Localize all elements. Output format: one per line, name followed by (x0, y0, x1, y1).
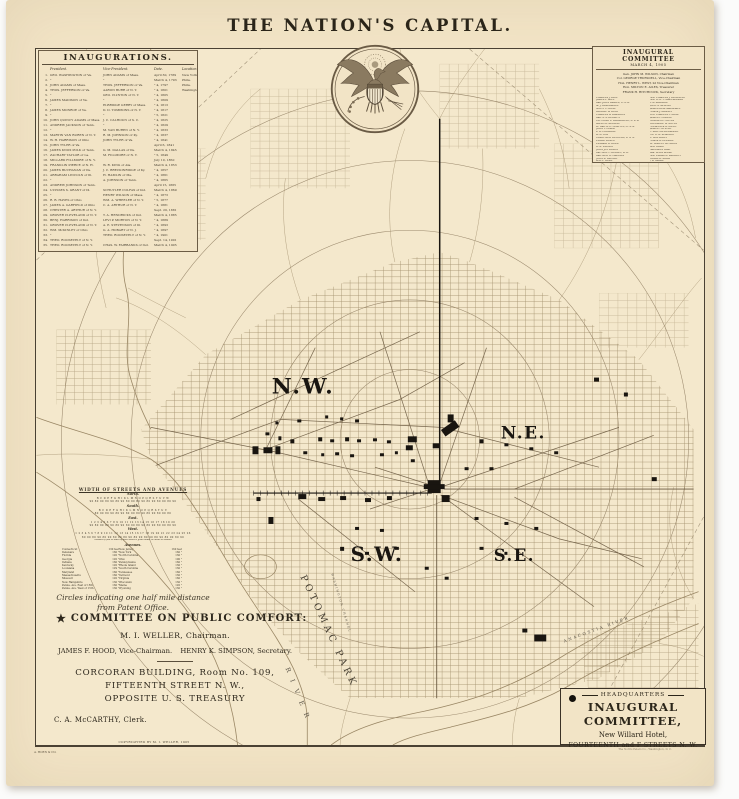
committee-members: CHARLES J. BELLJAMES F. BELLGen. JOHN BI… (596, 97, 701, 164)
chairman-line: M. I. WELLER, Chairman. (56, 631, 294, 640)
avenue-row: Penna. Ave. West of 15th 130 " Wyoming 1… (62, 587, 204, 590)
inaugurations-header: President. Vice-President. Date. Locatio… (42, 67, 194, 71)
col-president: President. (50, 67, 102, 71)
headquarters-dot-icon (569, 695, 576, 702)
circles-caption: Circles indicating one half mile distanc… (54, 593, 212, 613)
avenues-list: Connecticut 130 feet New Jersey 160 feet… (62, 548, 204, 591)
inaugurations-title: INAUGURATIONS. (42, 53, 194, 65)
streets-width-note: WIDTH OF STREETS AND AVENUES North.B C D… (62, 487, 204, 591)
committee-title: INAUGURAL COMMITTEE (596, 49, 701, 63)
svg-text:N.E.: N.E. (501, 422, 546, 442)
inaugurations-panel: INAUGURATIONS. President. Vice-President… (38, 50, 198, 252)
streets-note-lines: North.B C D E F G H I K L M N O P Q R S … (62, 492, 204, 543)
printer-credit: The Norris Peters Co., Washington, D. C. (584, 748, 706, 751)
members-column-1: CHARLES J. BELLJAMES F. BELLGen. JOHN BI… (596, 97, 648, 164)
screenshot-stage: THE NATION'S CAPITAL. N.W.N.E.S.W.S.E.PO… (0, 0, 739, 799)
headquarters-box: HEADQUARTERS INAUGURAL COMMITTEE, New Wi… (560, 688, 706, 745)
great-seal-icon (328, 42, 422, 136)
lithographer-credit: A. HOEN & CO. (34, 750, 56, 754)
headquarters-title: INAUGURAL COMMITTEE, (561, 700, 705, 728)
inaugural-committee-panel: INAUGURAL COMMITTEE MARCH 4, 1905 Gen. J… (592, 46, 705, 163)
building-line-1: CORCORAN BUILDING, Room No. 109, (56, 667, 294, 680)
dash-rule (582, 695, 598, 696)
headquarters-hotel: New Willard Hotel, (561, 731, 705, 739)
table-row: 35. THEO. ROOSEVELT of N. Y. CHAS. W. FA… (42, 243, 194, 248)
headquarters-label: HEADQUARTERS (601, 692, 665, 698)
building-line-2: FIFTEENTH STREET N. W., (56, 680, 294, 693)
svg-text:S.W.: S.W. (351, 542, 404, 566)
members-column-2: Hon. CHARLES J. BUCKNELLHon. H. B. F. MA… (650, 97, 702, 164)
committee-date: MARCH 4, 1905 (596, 63, 701, 70)
col-vice-president: Vice-President. (103, 67, 153, 71)
public-comfort-block: ★COMMITTEE ON PUBLIC COMFORT: M. I. WELL… (56, 612, 294, 706)
star-icon: ★ (56, 612, 71, 625)
building-line-3: OPPOSITE U. S. TREASURY (56, 693, 294, 706)
officer: FRANK H. HITCHCOCK, Secretary (596, 90, 701, 95)
headquarters-label-row: HEADQUARTERS (561, 692, 705, 698)
public-comfort-title: ★COMMITTEE ON PUBLIC COMFORT: (56, 612, 294, 625)
secretary-line: HENRY K. SIMPSON, Secretary. (180, 647, 292, 655)
committee-officers: Gen. JOHN M. WILSON, ChairmanCol. GEORGE… (596, 72, 701, 95)
svg-text:S.E.: S.E. (494, 546, 535, 565)
page-title: THE NATION'S CAPITAL. (35, 16, 705, 35)
member: J. D. SMALL (650, 160, 702, 163)
clerk-line: C. A. McCARTHY, Clerk. (54, 716, 147, 724)
divider (157, 661, 193, 662)
dash-rule (668, 695, 684, 696)
svg-text:N.W.: N.W. (272, 374, 335, 400)
svg-text:ANACOSTIA RIVER: ANACOSTIA RIVER (562, 615, 630, 644)
officers-line: JAMES F. HOOD, Vice-Chairman. HENRY K. S… (56, 647, 294, 655)
member: WM. F. GUDE (596, 160, 648, 163)
col-location: Location. (182, 67, 198, 71)
copyright-line: COPYRIGHTED BY M. I. WELLER, 1905 (114, 740, 194, 744)
col-date: Date. (154, 67, 181, 71)
vice-chairman-line: JAMES F. HOOD, Vice-Chairman. (58, 647, 172, 655)
inaugurations-rows: 1. GEO. WASHINGTON of Va. JOHN ADAMS of … (42, 73, 194, 248)
map-sheet: THE NATION'S CAPITAL. N.W.N.E.S.W.S.E.PO… (6, 0, 714, 786)
